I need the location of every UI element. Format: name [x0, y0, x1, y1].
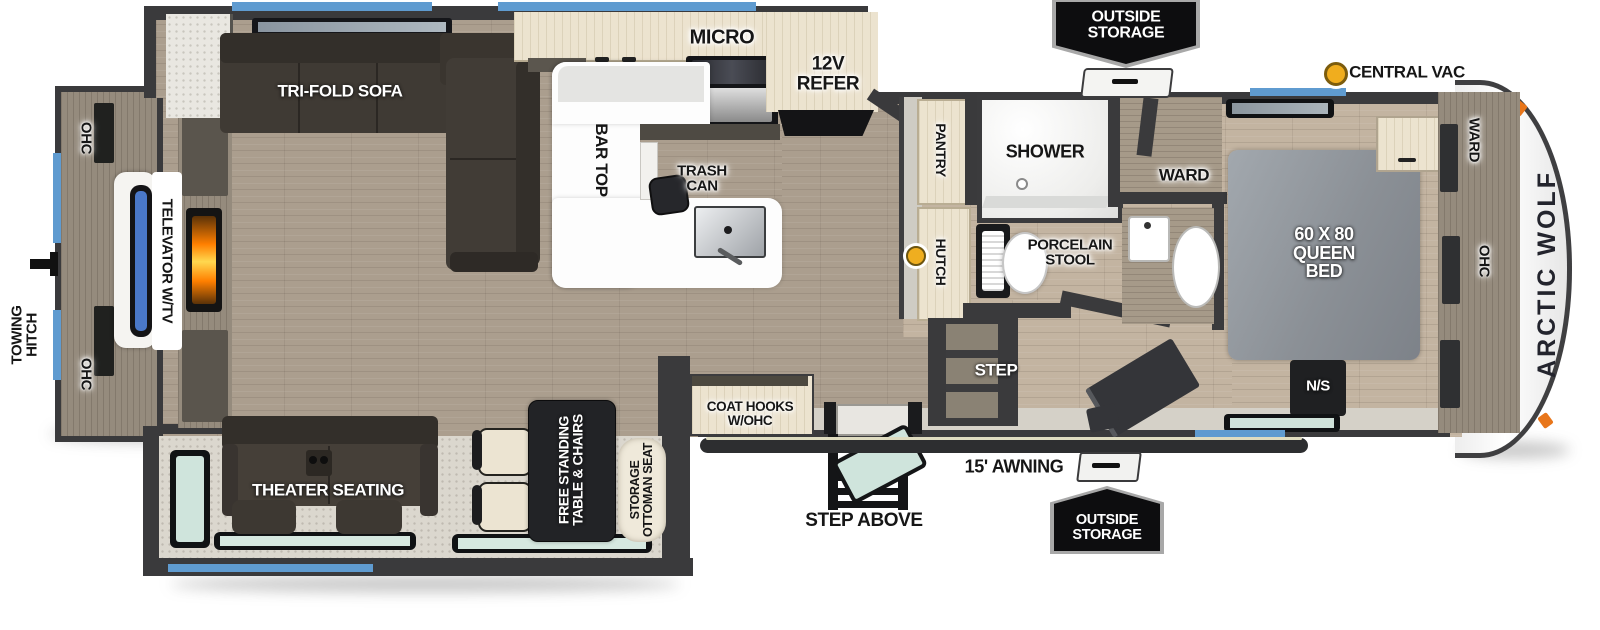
toilet-tank-inner	[982, 231, 1004, 291]
slide-half-wall	[658, 356, 690, 436]
galley-counter-front	[640, 124, 780, 140]
towing-line1: TOWING	[10, 306, 25, 365]
trash-can-label: TRASH CAN	[677, 164, 727, 195]
bartop-shade	[558, 66, 704, 102]
porcelain-stool-label: PORCELAIN STOOL	[1028, 238, 1113, 269]
top-slide-window-strip-2	[498, 2, 756, 11]
coat-hooks-line2: W/OHC	[707, 414, 794, 428]
tv-screen-glass	[135, 191, 147, 331]
bartop-label: BAR TOP	[592, 123, 610, 196]
ohc-rear-bottom-label: OHC	[78, 358, 93, 390]
step-above-label: STEP ABOVE	[805, 511, 922, 531]
os-bot-line1: OUTSIDE	[1072, 513, 1141, 528]
theater-footrest-1	[232, 500, 296, 534]
front-wardrobe-panel-2	[1442, 236, 1460, 304]
os-top-line1: OUTSIDE	[1088, 10, 1165, 26]
slide-bottom-window-1-glass	[220, 536, 410, 546]
ward-bath-label: WARD	[1159, 166, 1209, 184]
os-top-line2: STORAGE	[1088, 26, 1165, 42]
vanity-faucet-dot	[1144, 222, 1151, 229]
ward-bath-cabinet	[1120, 97, 1222, 201]
outside-storage-bottom-label: OUTSIDE STORAGE	[1072, 513, 1141, 543]
refrigerator-open-door	[778, 110, 874, 136]
step-label: STEP	[975, 361, 1018, 379]
ottoman-line1: STORAGE	[629, 443, 642, 537]
queen-bed-label: 60 X 80 QUEEN BED	[1293, 225, 1355, 281]
ohc-front-label: OHC	[1476, 245, 1491, 277]
televator-label: TELEVATOR W/TV	[159, 199, 174, 323]
marker-light-bottom-icon	[1537, 412, 1554, 429]
pantry-shower-wall	[965, 95, 977, 205]
rear-window-strip-1	[53, 153, 61, 243]
refer-line2: REFER	[797, 74, 859, 94]
front-wardrobe-panel-3	[1440, 340, 1460, 408]
hutch-label: HUTCH	[934, 239, 948, 286]
bottom-slide-left-wall	[143, 426, 159, 574]
top-slide-window-strip-1	[232, 2, 432, 11]
storage-ottoman-label: STORAGE OTTOMAN SEAT	[629, 443, 655, 537]
bed-overhead-handle	[1398, 158, 1416, 162]
outside-storage-top-label: OUTSIDE STORAGE	[1088, 10, 1165, 43]
ottoman-line2: OTTOMAN SEAT	[642, 443, 655, 537]
sofa-chaise-arm	[516, 60, 540, 266]
tri-fold-sofa-label: TRI-FOLD SOFA	[277, 82, 402, 100]
rear-cabinet-panel-bottom	[94, 306, 114, 376]
shower-ward-wall	[1108, 95, 1120, 207]
ohc-rear-top-label: OHC	[78, 122, 93, 154]
rear-cabinet-panel-top	[94, 103, 114, 163]
central-vac-dot	[1324, 62, 1348, 86]
theater-cupholder-1	[309, 456, 317, 464]
shower-label: SHOWER	[1006, 143, 1085, 162]
bottom-slide-blue-strip	[168, 564, 373, 572]
free-standing-table-label: FREE STANDING TABLE & CHAIRS	[557, 414, 586, 526]
towing-hitch-label: TOWING HITCH	[10, 306, 41, 365]
bedroom-top-blue-strip	[1250, 88, 1346, 96]
coat-hooks-top-band	[692, 376, 808, 386]
table-line2: TABLE & CHAIRS	[571, 414, 585, 526]
outside-storage-top-handle	[1112, 79, 1138, 84]
awning-label: 15' AWNING	[965, 458, 1064, 477]
top-slide-left-wall	[144, 6, 156, 98]
sofa-window-glass	[258, 22, 446, 32]
central-vac-label: CENTRAL VAC	[1349, 63, 1465, 81]
tv-wall-panel-bottom	[182, 330, 228, 422]
dinette-chair-2	[478, 482, 532, 532]
bath-bottom-wall	[963, 303, 1071, 318]
dinette-chair-2-back	[472, 485, 482, 525]
coat-hooks-line1: COAT HOOKS	[707, 400, 794, 414]
rear-window-strip-2	[53, 310, 61, 380]
theater-seating-label: THEATER SEATING	[252, 481, 404, 499]
shadow-slide-bottom	[170, 576, 680, 592]
shower-glass-edge	[982, 196, 1110, 208]
bed-line3: BED	[1293, 262, 1355, 281]
dinette-chair-1	[478, 428, 532, 476]
sofa-back-band	[220, 33, 456, 63]
bedroom-top-window-glass	[1232, 103, 1328, 114]
outside-storage-bottom-handle	[1092, 463, 1120, 468]
range-oven-door	[700, 88, 772, 122]
refer-line1: 12V	[797, 54, 859, 74]
ward-bath-bottom-wall	[1115, 192, 1227, 204]
dinette-chair-1-back	[472, 430, 482, 470]
ward-front-label: WARD	[1466, 118, 1481, 162]
awning-bar	[700, 438, 1308, 453]
sofa-foot	[450, 252, 538, 272]
sofa-chaise-seam	[450, 158, 516, 160]
floorplan-scene: ARCTIC WOLF TELEVATOR W/TV OHC OHC TOWIN…	[0, 0, 1600, 630]
front-wardrobe-panel-1	[1440, 124, 1458, 192]
pantry-label: PANTRY	[934, 123, 948, 177]
awning-highlight	[706, 437, 1302, 440]
coat-hooks-label: COAT HOOKS W/OHC	[707, 400, 794, 428]
brand-text: ARCTIC WOLF	[1535, 170, 1561, 378]
towing-hitch-post-icon	[50, 252, 58, 276]
towing-line2: HITCH	[25, 306, 40, 365]
entry-step-rung-5	[832, 501, 904, 508]
bed-line1: 60 X 80	[1293, 225, 1355, 244]
entry-post-left	[824, 402, 836, 434]
bedroom-bottom-window-glass	[1230, 418, 1334, 428]
os-bot-line2: STORAGE	[1072, 528, 1141, 543]
entry-post-right	[908, 402, 922, 434]
bed-line2: QUEEN	[1293, 244, 1355, 263]
monitor-panel-dot	[906, 246, 926, 266]
micro-label: MICRO	[690, 28, 755, 49]
trash-line2: CAN	[677, 179, 727, 194]
shower-drain-icon	[1016, 178, 1028, 190]
fireplace-glow	[192, 216, 216, 304]
nightstand-label: N/S	[1306, 378, 1330, 393]
bed-overhead-cabinet	[1376, 116, 1442, 172]
theater-cupholder-2	[320, 456, 328, 464]
theater-footrest-2	[336, 500, 402, 534]
porcelain-line2: STOOL	[1028, 253, 1113, 268]
bottom-slide-right-wall	[662, 426, 690, 574]
slide-left-window-glass	[176, 456, 204, 542]
refer-label: 12V REFER	[797, 54, 859, 93]
vanity-oval-basin	[1172, 226, 1220, 308]
island-sink-drain	[724, 226, 732, 234]
theater-armrest-right	[420, 444, 438, 516]
